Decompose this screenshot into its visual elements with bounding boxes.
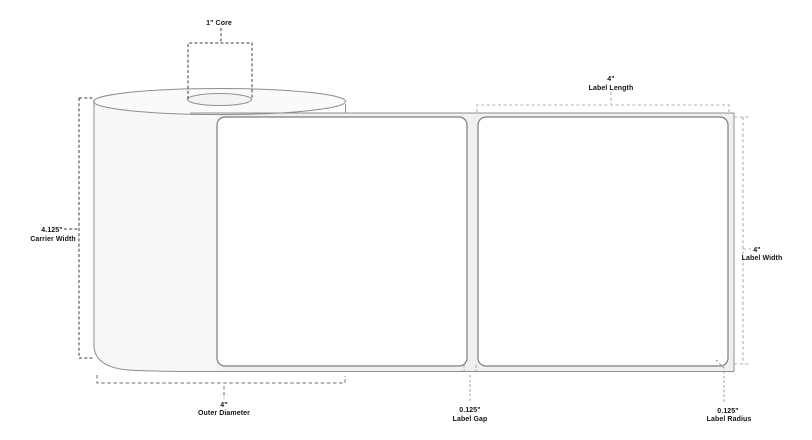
outer-diameter-name: Outer Diameter [198, 410, 250, 417]
dimension-carrier-width: 4.125" Carrier Width [30, 98, 93, 358]
outer-diameter-extent-line [97, 375, 345, 383]
label-length-name: Label Length [589, 85, 634, 92]
diagram-canvas: 1" Core 4" Label Length 4.125" Carrier W… [0, 0, 812, 440]
dimension-label-length: 4" Label Length [477, 76, 729, 112]
label-gap-value: 0.125" [459, 407, 480, 414]
label-length-extent-line [477, 105, 729, 112]
outer-diameter-value: 4" [220, 402, 227, 409]
label-gap-name: Label Gap [453, 416, 488, 423]
roll-core-hole [188, 94, 252, 106]
label-radius-name: Label Radius [707, 416, 752, 423]
dimension-label-width: 4" Label Width [734, 117, 782, 364]
label-length-value: 4" [607, 76, 614, 83]
dimension-label-gap: 0.125" Label Gap [453, 365, 488, 423]
label-width-name: Label Width [742, 255, 783, 262]
dimension-outer-diameter: 4" Outer Diameter [97, 375, 345, 417]
label-roll-diagram: 1" Core 4" Label Length 4.125" Carrier W… [0, 0, 812, 440]
label-2 [478, 117, 728, 366]
carrier-width-value: 4.125" [41, 227, 62, 234]
carrier-width-name: Carrier Width [30, 236, 76, 243]
roll-assembly [94, 89, 735, 372]
core-label: 1" Core [206, 20, 232, 27]
roll-body [94, 100, 217, 372]
label-radius-value: 0.125" [717, 408, 738, 415]
label-width-value: 4" [753, 247, 760, 254]
dimension-core: 1" Core [188, 20, 252, 100]
label-1 [217, 117, 467, 366]
